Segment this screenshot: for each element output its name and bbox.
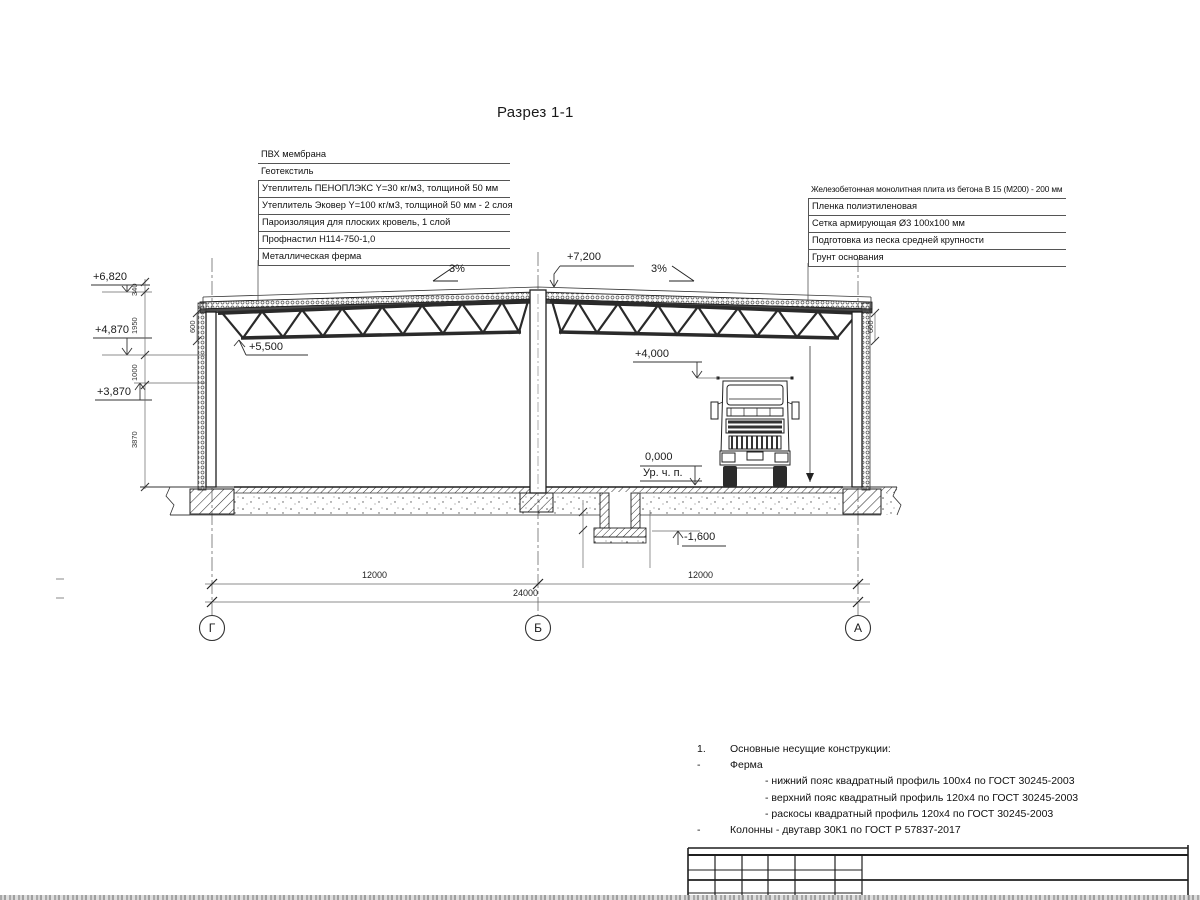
elevation-3870: +3,870 — [97, 386, 131, 398]
note-text: - верхний пояс квадратный профиль 120х4 … — [730, 790, 1078, 806]
notes-block: 1. Основные несущие конструкции: - Ферма… — [697, 741, 1177, 838]
callout-row: Железобетонная монолитная плита из бетон… — [808, 182, 1066, 199]
vdim-1000: 1000 — [130, 364, 139, 381]
bottom-artifact-strip — [0, 895, 1200, 900]
callout-row: Пленка полиэтиленовая — [808, 199, 1066, 216]
dim-bay-left: 12000 — [362, 570, 387, 580]
note-text: Колонны - двутавр 30К1 по ГОСТ Р 57837-2… — [730, 822, 961, 838]
truck-mirror-right — [792, 402, 799, 419]
callout-row: Грунт основания — [808, 250, 1066, 267]
note-line: - верхний пояс квадратный профиль 120х4 … — [697, 790, 1177, 806]
callout-row: Утеплитель ПЕНОПЛЭКС Y=30 кг/м3, толщино… — [258, 181, 510, 198]
bottom-dims — [56, 579, 871, 641]
wall-panel-left — [198, 303, 206, 490]
gate-line — [806, 346, 814, 482]
drawing-title: Разрез 1-1 — [497, 104, 574, 121]
elevation-4870: +4,870 — [95, 324, 129, 336]
vdim-340: 340 — [130, 283, 139, 296]
elevation-eaves: +6,820 — [93, 271, 127, 283]
vdim-1950: 1950 — [130, 317, 139, 334]
note-line: 1. Основные несущие конструкции: — [697, 741, 1177, 757]
note-marker: 1. — [697, 741, 730, 757]
callout-row: Сетка армирующая Ø3 100x100 мм — [808, 216, 1066, 233]
pit-footing — [594, 528, 646, 537]
axis-label-middle: Б — [530, 621, 546, 635]
truck-mirror-left — [711, 402, 718, 419]
floor-level-note: Ур. ч. п. — [643, 467, 683, 479]
callout-row: Подготовка из песка средней крупности — [808, 233, 1066, 250]
note-marker — [697, 806, 730, 822]
note-text: Ферма — [730, 757, 763, 773]
note-line: - Колонны - двутавр 30К1 по ГОСТ Р 57837… — [697, 822, 1177, 838]
drawing-sheet: Разрез 1-1 ПВХ мембрана Геотекстиль Утеп… — [0, 0, 1200, 900]
note-text: Основные несущие конструкции: — [730, 741, 891, 757]
vdim-3870: 3870 — [130, 431, 139, 448]
callout-row: Металлическая ферма — [258, 249, 510, 266]
slope-label-right: 3% — [651, 263, 667, 275]
note-line: - Ферма — [697, 757, 1177, 773]
note-text: - нижний пояс квадратный профиль 100х4 п… — [730, 773, 1075, 789]
elevation-floor: 0,000 — [645, 451, 673, 463]
callout-row: ПВХ мембрана — [258, 147, 510, 164]
note-line: - раскосы квадратный профиль 120х4 по ГО… — [697, 806, 1177, 822]
elevation-pit: -1,600 — [684, 531, 715, 543]
elevation-truss-bottom: +5,500 — [249, 341, 283, 353]
elevation-ridge: +7,200 — [567, 251, 601, 263]
truss-depth-left-label: 600 — [188, 320, 197, 333]
callout-row: Профнастил Н114-750-1,0 — [258, 232, 510, 249]
roof-callout-table: ПВХ мембрана Геотекстиль Утеплитель ПЕНО… — [258, 147, 510, 266]
truck-wheel-left — [723, 466, 737, 487]
foundation-middle — [520, 493, 553, 512]
truck-wheel-right — [773, 466, 787, 487]
note-marker: - — [697, 757, 730, 773]
dim-total: 24000 — [513, 588, 538, 598]
vertical-dim-chain — [141, 278, 149, 491]
title-block — [688, 845, 1188, 900]
axis-label-right: А — [850, 621, 866, 635]
truck — [711, 377, 799, 488]
elevation-clearance: +4,000 — [635, 348, 669, 360]
dim-bay-right: 12000 — [688, 570, 713, 580]
column-left — [206, 312, 216, 487]
truss-depth-right-label: 600 — [866, 320, 875, 333]
callout-row: Утеплитель Эковер Y=100 кг/м3, толщиной … — [258, 198, 510, 215]
column-right — [852, 312, 862, 487]
note-text: - раскосы квадратный профиль 120х4 по ГО… — [730, 806, 1053, 822]
axis-label-left: Г — [204, 621, 220, 635]
note-line: - нижний пояс квадратный профиль 100х4 п… — [697, 773, 1177, 789]
foundation-right — [843, 489, 881, 514]
note-marker — [697, 790, 730, 806]
slope-label-left: 3% — [449, 263, 465, 275]
callout-row: Пароизоляция для плоских кровель, 1 слой — [258, 215, 510, 232]
foundation-left — [190, 489, 234, 514]
note-marker — [697, 773, 730, 789]
note-marker: - — [697, 822, 730, 838]
callout-row: Геотекстиль — [258, 164, 510, 181]
floor-callout-table: Железобетонная монолитная плита из бетон… — [808, 182, 1066, 267]
